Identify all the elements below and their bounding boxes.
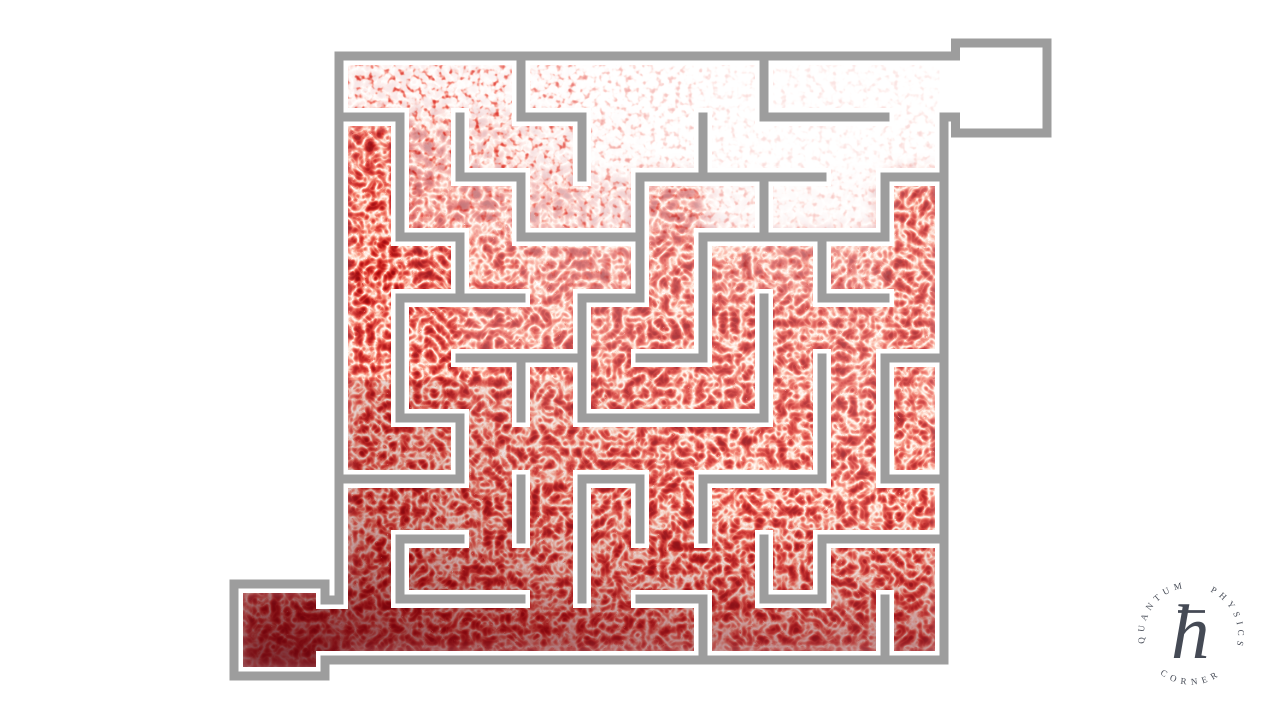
- svg-text:h: h: [1171, 589, 1210, 675]
